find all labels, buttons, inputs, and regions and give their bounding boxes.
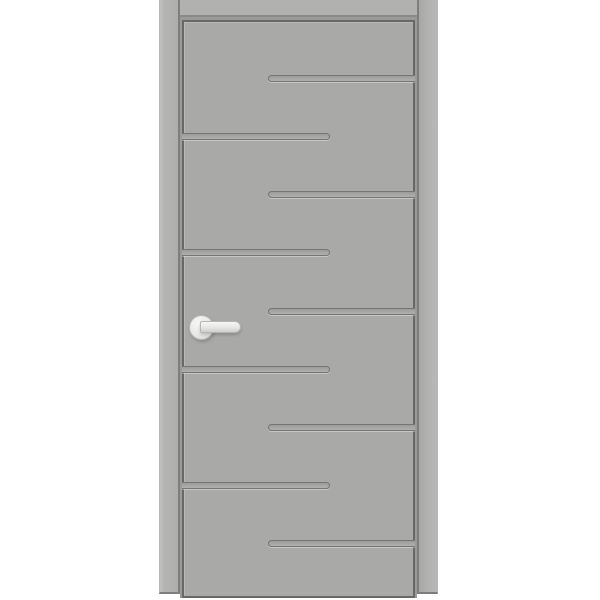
door-groove-left-attached [182, 366, 330, 373]
door-frame-left-jamb [159, 0, 180, 594]
door-groove-right-attached [268, 75, 415, 82]
door-groove-left-attached [182, 482, 330, 489]
door-groove-right-attached [268, 540, 415, 547]
door-groove-right-attached [268, 424, 415, 431]
door-groove-left-attached [182, 133, 330, 140]
door-frame-head [180, 0, 417, 17]
door-handle-lever-icon [200, 321, 241, 333]
door-slab [182, 20, 415, 598]
door-frame-right-jamb [417, 0, 438, 594]
door-groove-right-attached [268, 191, 415, 198]
door-groove-right-attached [268, 308, 415, 315]
door-product-image [0, 0, 600, 600]
door-groove-left-attached [182, 249, 330, 256]
